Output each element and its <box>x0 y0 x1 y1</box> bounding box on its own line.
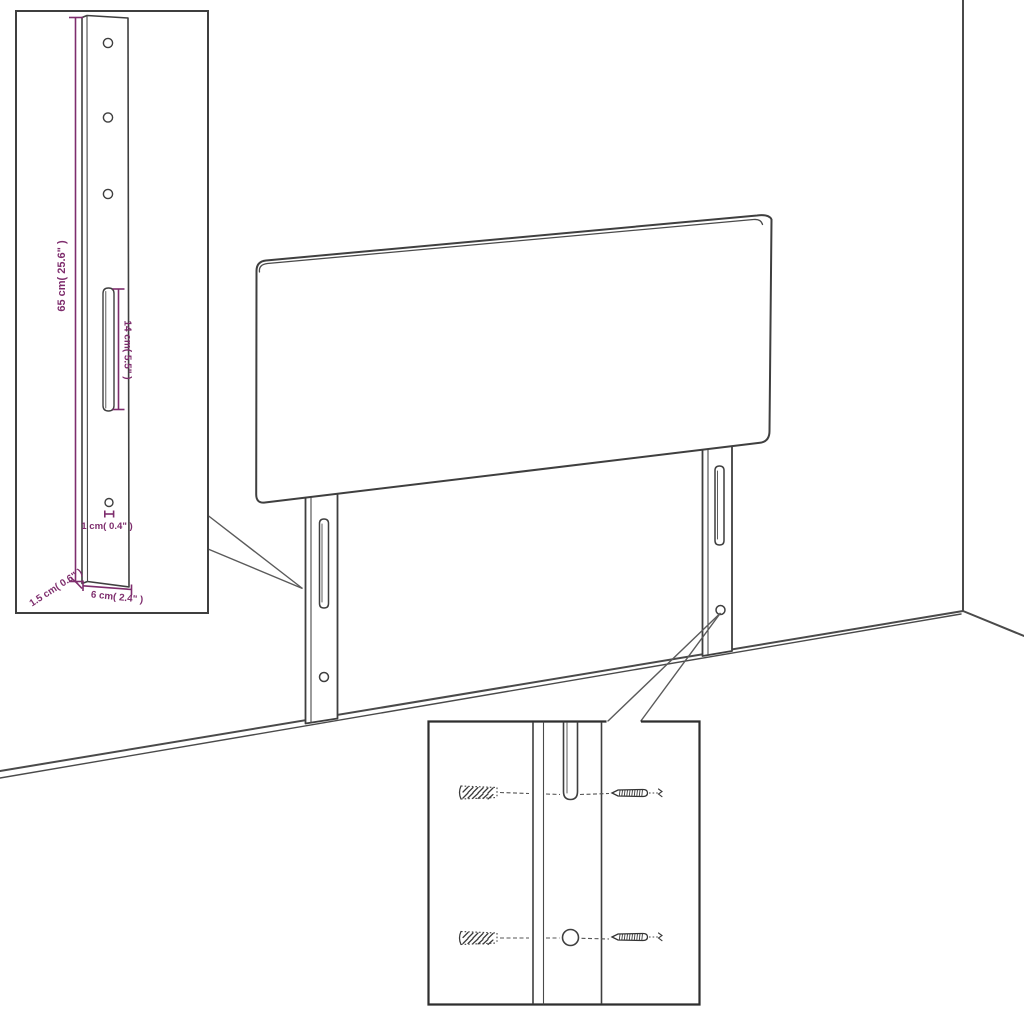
callout-lines <box>208 516 721 722</box>
dimension-slot-label: 14 cm( 5.5" ) <box>121 320 132 379</box>
bracket-hole-2 <box>103 113 112 122</box>
dimension-hole-label: 1 cm( 0.4" ) <box>81 521 132 532</box>
headboard-panel <box>256 215 771 502</box>
floor-wall-line-right <box>963 611 1024 636</box>
headboard-assembly-diagram: 65 cm( 25.6" ) 14 cm( 5.5" ) 1 cm( 0.4" … <box>0 0 1024 1024</box>
left-leg-hole <box>320 673 329 682</box>
headboard-left-leg <box>306 466 338 724</box>
headboard-right-leg <box>703 416 733 656</box>
detail-hole <box>563 930 579 946</box>
bracket-slot <box>103 288 114 411</box>
left-leg-slot <box>320 519 329 608</box>
leg-dimension-inset: 65 cm( 25.6" ) 14 cm( 5.5" ) 1 cm( 0.4" … <box>16 11 208 613</box>
right-leg-slot <box>715 466 724 545</box>
bracket-small-hole <box>105 499 113 507</box>
dimension-height-label: 65 cm( 25.6" ) <box>56 240 68 312</box>
bracket-hole-1 <box>103 38 112 47</box>
hardware-detail-inset <box>429 722 700 1005</box>
bracket-hole-3 <box>103 189 112 198</box>
